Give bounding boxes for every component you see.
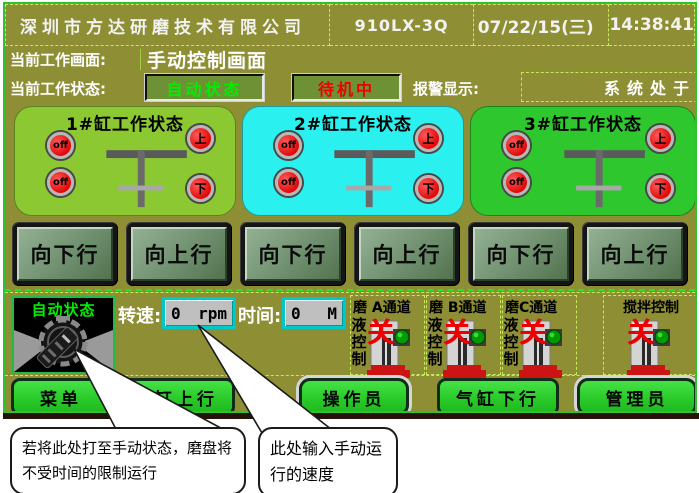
- slurry-a-side-label: 液控制: [351, 317, 367, 368]
- valve-closed-indicator: 关: [367, 311, 394, 350]
- mode-status-field[interactable]: 自动状态: [145, 74, 264, 101]
- hmi-page: 深圳市方达研磨技术有限公司 910LX-3Q 07/22/15(三) 14:38…: [0, 0, 699, 493]
- cylinder3-lamp-off1: off: [503, 132, 530, 159]
- valve-closed-indicator: 关: [519, 311, 546, 350]
- alarm-display-label: 报警显示:: [413, 78, 479, 99]
- screen-bottom-bezel: [3, 413, 699, 419]
- header: 深圳市方达研磨技术有限公司 910LX-3Q 07/22/15(三) 14:38…: [5, 4, 695, 46]
- cylinder-down-button[interactable]: 气缸下行: [437, 378, 559, 413]
- cylinder1-panel: 1#缸工作状态 off off 上 下: [14, 106, 236, 216]
- status-row: 当前工作状态: 自动状态 待机中 报警显示: 系统处于: [5, 72, 695, 103]
- go-down-button-3[interactable]: 向下行: [468, 222, 574, 286]
- slurry-c-side-label: 液控制: [503, 317, 519, 368]
- slurry-c-channel[interactable]: 磨C通道 液控制: [502, 295, 577, 375]
- cylinder2-lamp-off1: off: [275, 132, 302, 159]
- motion-button-row: 向下行 向上行 向下行 向上行 向下行 向上行: [5, 222, 695, 288]
- stir-valve[interactable]: 关: [627, 317, 673, 379]
- rotary-knob-icon: [14, 316, 113, 372]
- time-label: 时间:: [238, 302, 281, 328]
- cylinder2-lamp-off2: off: [275, 169, 302, 196]
- company-title: 深圳市方达研磨技术有限公司: [5, 4, 330, 46]
- cylinder3-lamp-down: 下: [647, 175, 674, 202]
- slurry-b-channel[interactable]: 磨 B通道 液控制: [426, 295, 501, 375]
- speed-label: 转速:: [118, 302, 161, 328]
- cylinder1-lamp-up: 上: [187, 125, 214, 152]
- time-unit: M: [327, 304, 337, 323]
- slurry-a-channel[interactable]: 磨 A通道 液控制: [350, 295, 425, 375]
- valve-closed-indicator: 关: [627, 311, 654, 350]
- cylinder1-lamp-off1: off: [47, 132, 74, 159]
- cylinder3-lamp-off2: off: [503, 169, 530, 196]
- go-down-button-2[interactable]: 向下行: [240, 222, 346, 286]
- cylinder2-lamp-down: 下: [415, 175, 442, 202]
- time-display: 14:38:41: [609, 4, 695, 46]
- admin-button[interactable]: 管理员: [577, 378, 697, 413]
- menu-button[interactable]: 菜单: [11, 378, 111, 413]
- cylinder1-lamp-off2: off: [47, 169, 74, 196]
- standby-status-field[interactable]: 待机中: [292, 74, 401, 101]
- cylinder3-panel: 3#缸工作状态 off off 上 下: [470, 106, 696, 216]
- cylinder2-panel: 2#缸工作状态 off off 上 下: [242, 106, 464, 216]
- cylinder2-lamp-up: 上: [415, 125, 442, 152]
- work-status-label: 当前工作状态:: [10, 78, 106, 99]
- speed-annotation-bubble: 此处输入手动运行的速度: [258, 427, 398, 493]
- divider-dashed: [5, 289, 695, 291]
- go-up-button-3[interactable]: 向上行: [582, 222, 688, 286]
- slurry-b-side-label: 液控制: [427, 317, 443, 368]
- cylinder3-lamp-up: 上: [647, 125, 674, 152]
- current-screen-row: 当前工作画面: 手动控制画面: [5, 47, 695, 71]
- mode-selector-switch[interactable]: 自动状态: [12, 296, 115, 374]
- current-screen-value: 手动控制画面: [141, 46, 267, 73]
- cylinder-up-button[interactable]: 气缸上行: [117, 378, 235, 413]
- speed-value: 0: [171, 304, 181, 323]
- go-up-button-2[interactable]: 向上行: [354, 222, 460, 286]
- stir-control-channel[interactable]: 搅拌控制 关: [603, 295, 697, 375]
- valve-closed-indicator: 关: [443, 311, 470, 350]
- slurry-a-valve[interactable]: 关: [367, 317, 413, 379]
- date-display: 07/22/15(三): [473, 4, 610, 46]
- manual-control-section: 自动状态 转速: 0: [5, 292, 695, 376]
- knob-annotation-bubble: 若将此处打至手动状态，磨盘将不受时间的限制运行: [10, 427, 246, 493]
- cylinder1-lamp-down: 下: [187, 175, 214, 202]
- go-down-button-1[interactable]: 向下行: [12, 222, 118, 286]
- model-number: 910LX-3Q: [330, 4, 472, 46]
- speed-unit: rpm: [198, 304, 227, 323]
- go-up-button-1[interactable]: 向上行: [126, 222, 232, 286]
- slurry-c-valve[interactable]: 关: [519, 317, 565, 379]
- current-screen-label: 当前工作画面:: [5, 49, 141, 70]
- operator-button[interactable]: 操作员: [299, 378, 409, 413]
- speed-input[interactable]: 0 rpm: [162, 297, 236, 329]
- time-value: 0: [291, 304, 301, 323]
- hmi-screen: 深圳市方达研磨技术有限公司 910LX-3Q 07/22/15(三) 14:38…: [3, 2, 697, 413]
- alarm-marquee: 系统处于: [521, 72, 697, 102]
- time-input[interactable]: 0 M: [282, 297, 346, 329]
- slurry-b-valve[interactable]: 关: [443, 317, 489, 379]
